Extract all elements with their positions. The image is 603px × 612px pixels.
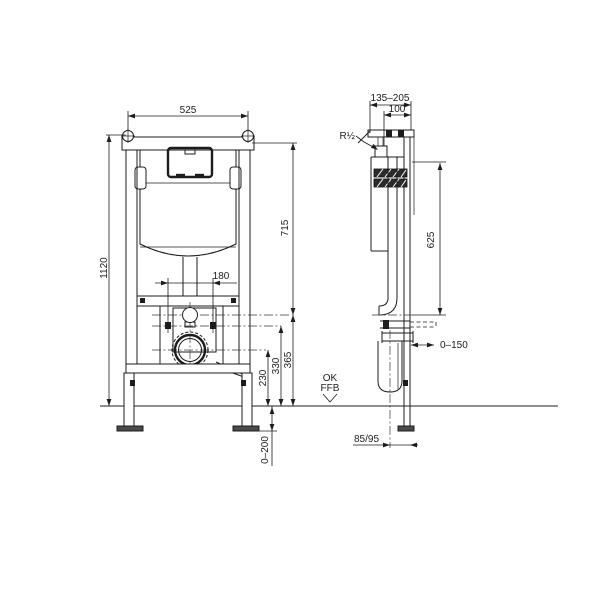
dim-width: 525 [128, 105, 248, 130]
drawing-sheet: 525 1120 715 365 3 [0, 0, 603, 612]
dim-depth-min-label: 100 [389, 104, 406, 115]
dim-inlet-height-label: 625 [426, 231, 437, 248]
dim-height: 1120 [99, 135, 126, 406]
dim-wall-distance: 0–150 [411, 340, 468, 351]
dim-foot-adjust-label: 0–200 [260, 436, 271, 464]
foot-right [233, 426, 259, 431]
wall-bracket-hatch [374, 169, 407, 187]
cistern [140, 143, 236, 256]
flush-pipe-circle [183, 308, 198, 323]
dim-outlet-height: 230 [258, 350, 270, 406]
fixing-stud-left [165, 318, 171, 333]
dim-bolt-spacing-label: 180 [213, 271, 230, 282]
outlet-stub [382, 331, 413, 343]
dim-outlet-offset-label: 85/95 [354, 434, 379, 445]
technical-drawing: 525 1120 715 365 3 [0, 0, 603, 612]
foot-left [117, 426, 143, 431]
water-connection-label: R½ [339, 131, 355, 142]
dim-upper-label: 715 [280, 219, 291, 236]
fixing-stud-right [210, 318, 216, 333]
dim-outlet-height-label: 230 [258, 369, 269, 386]
water-inlet-fitting [375, 137, 387, 157]
dim-wall-distance-label: 0–150 [440, 340, 468, 351]
dim-upper: 715 [252, 143, 297, 315]
side-view [358, 130, 436, 448]
dim-width-label: 525 [180, 105, 197, 116]
dim-inlet-height: 625 [412, 162, 446, 315]
dim-bolt-height-label: 330 [271, 357, 282, 374]
floor-level-marker: OK FFB [321, 373, 340, 402]
dim-flush-height-label: 365 [283, 351, 294, 368]
dim-outlet-offset: 85/95 [353, 434, 418, 447]
dim-depth-min: 100 [384, 104, 411, 146]
legs [117, 373, 259, 431]
dim-bolt-height: 330 [271, 326, 283, 406]
dim-height-label: 1120 [99, 257, 110, 279]
side-dimensions: 135–205 100 R½ 625 [321, 93, 469, 447]
fixing-bracket-side [380, 320, 436, 329]
leg-bolt-side [403, 380, 408, 386]
foot-side [398, 426, 414, 431]
dim-foot-adjust: 0–200 [256, 406, 277, 466]
dim-depth-range-label: 135–205 [371, 93, 410, 104]
floor-label-ffb: FFB [321, 383, 340, 394]
cross-member [137, 296, 239, 306]
floor-level-chevron [323, 394, 337, 402]
dim-flush-height: 365 [283, 315, 295, 406]
bottom-rail [126, 364, 250, 373]
top-bracket [358, 130, 414, 143]
